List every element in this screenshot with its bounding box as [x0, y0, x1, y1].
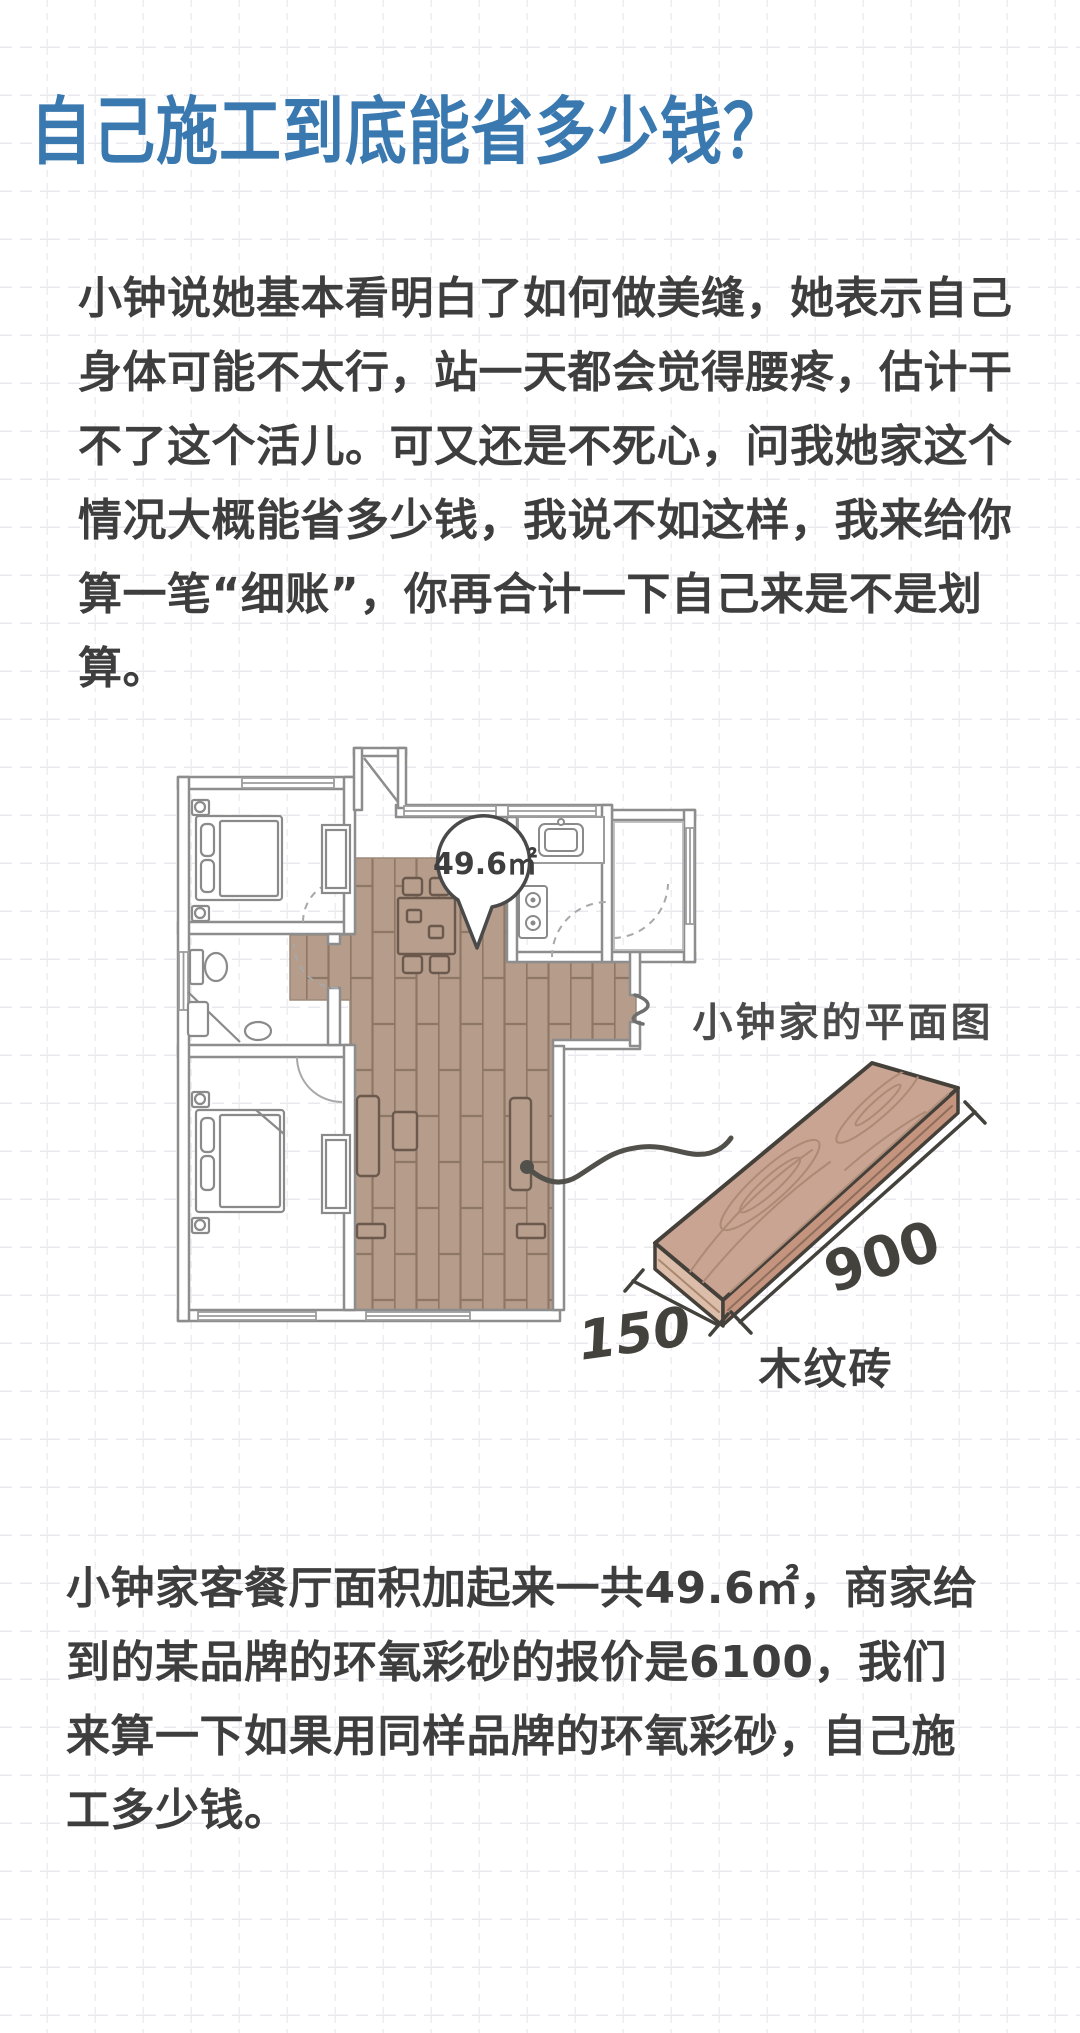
bathroom-fixtures: [188, 950, 271, 1042]
article-page: { "title": "自己施工到底能省多少钱？", "intro": "小钟说…: [0, 0, 1080, 2033]
kitchen-sink: [539, 819, 583, 856]
page-title: 自己施工到底能省多少钱？: [30, 72, 786, 178]
floor-plan-caption: 小钟家的平面图: [693, 1000, 994, 1046]
balcony-inner-line: [614, 822, 683, 950]
wood-tile-drawing: [655, 1059, 958, 1326]
tile-name-label: 木纹砖: [759, 1345, 894, 1395]
sofa: [510, 1098, 531, 1190]
intro-paragraph: 小钟说她基本看明白了如何做美缝，她表示自己 身体可能不太行，站一天都会觉得腰疼，…: [78, 262, 1038, 706]
tv-cabinet: [357, 1096, 379, 1176]
tile-width-label: 150: [574, 1295, 694, 1373]
vestibule-diagonal: [364, 758, 398, 802]
bedroom-bottom-furniture: [192, 1092, 350, 1233]
area-label: 49.6㎡: [433, 847, 537, 882]
coffee-table: [393, 1112, 417, 1150]
bedroom-top-furniture: [192, 800, 350, 921]
closing-paragraph: 小钟家客餐厅面积加起来一共49.6㎡，商家给 到的某品牌的环氧彩砂的报价是610…: [66, 1552, 1026, 1848]
kitchen-stove: [519, 886, 547, 938]
